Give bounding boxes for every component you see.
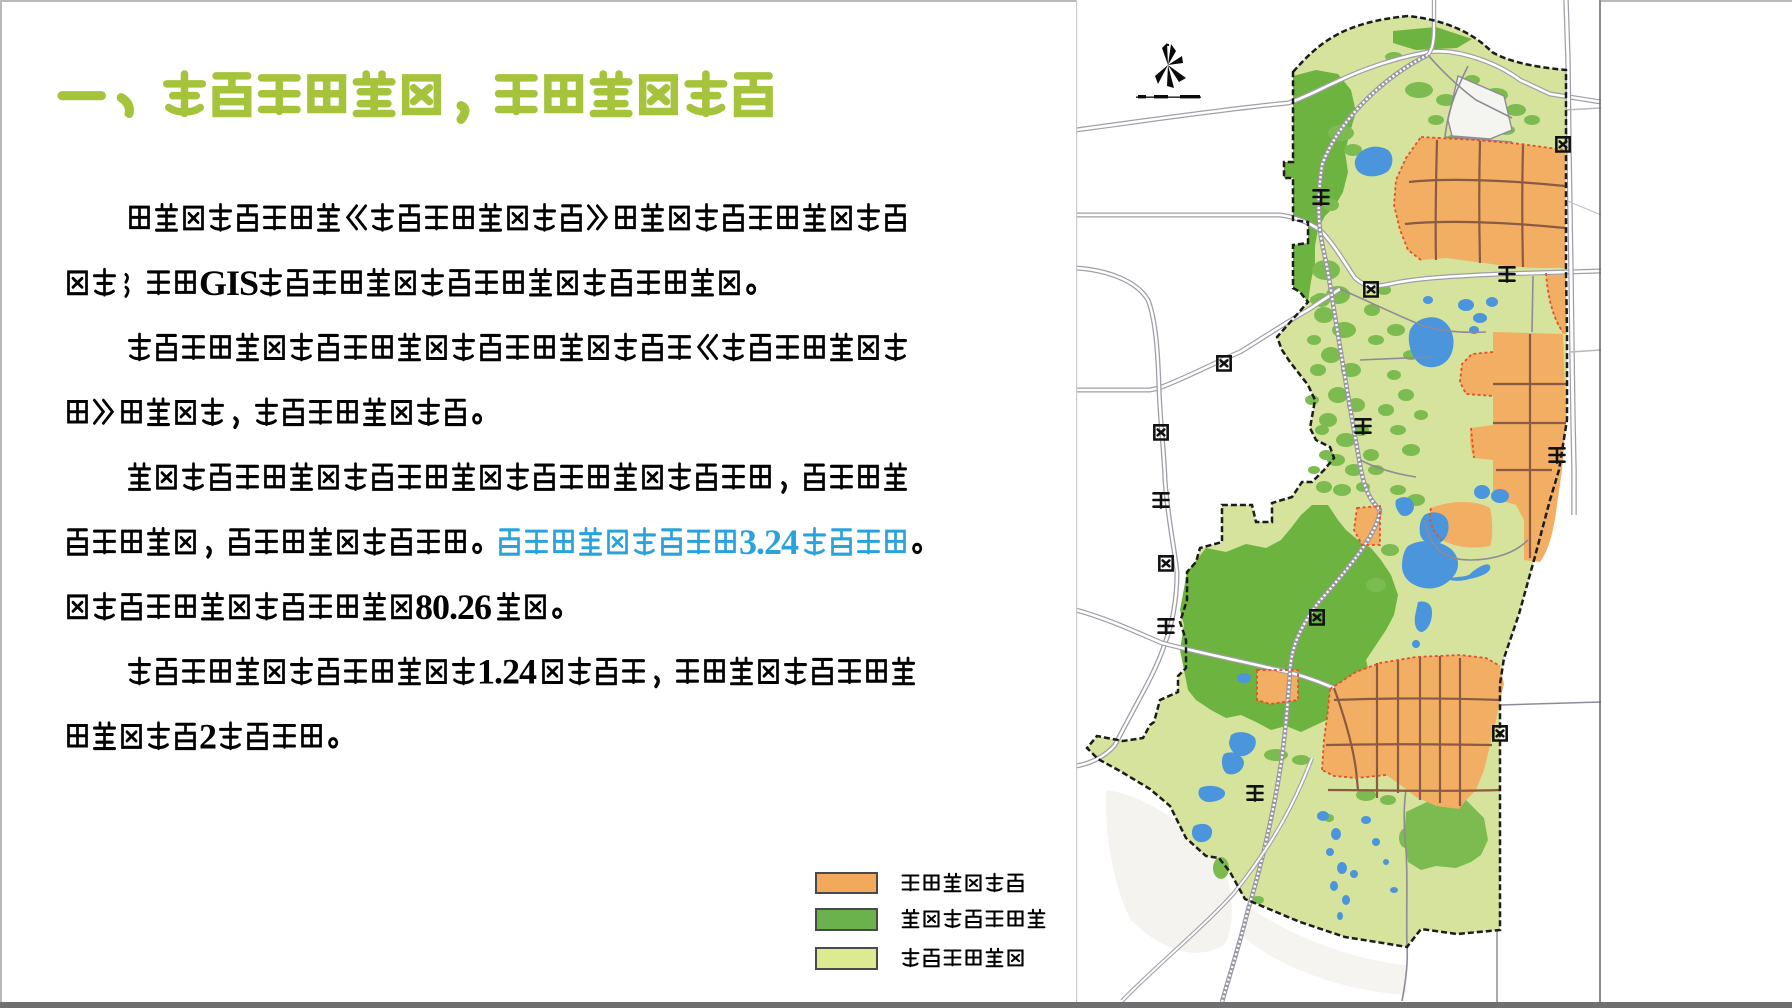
svg-text:3.24: 3.24 — [739, 522, 799, 562]
svg-text:80.26: 80.26 — [415, 587, 491, 627]
svg-text:GIS: GIS — [199, 263, 258, 303]
svg-text:2: 2 — [199, 716, 216, 756]
svg-text:1.24: 1.24 — [477, 652, 537, 692]
